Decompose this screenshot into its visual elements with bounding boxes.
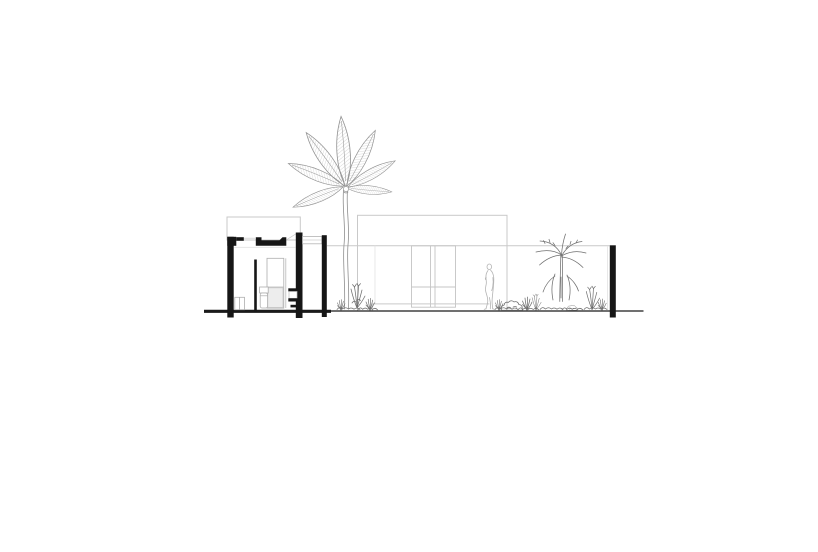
storage-box <box>235 297 245 309</box>
pergola-post-cut <box>322 235 327 311</box>
wc-fixture <box>260 287 269 308</box>
interior-partition-cut <box>254 260 257 312</box>
architectural-section-drawing: Architectural cross-section with banana … <box>0 0 818 552</box>
drawing-canvas: Architectural cross-section with banana … <box>0 0 818 552</box>
boundary-post-cut <box>610 245 616 317</box>
interior-door <box>267 258 286 308</box>
paper-background <box>0 0 818 552</box>
wall-left-cut <box>227 237 233 311</box>
